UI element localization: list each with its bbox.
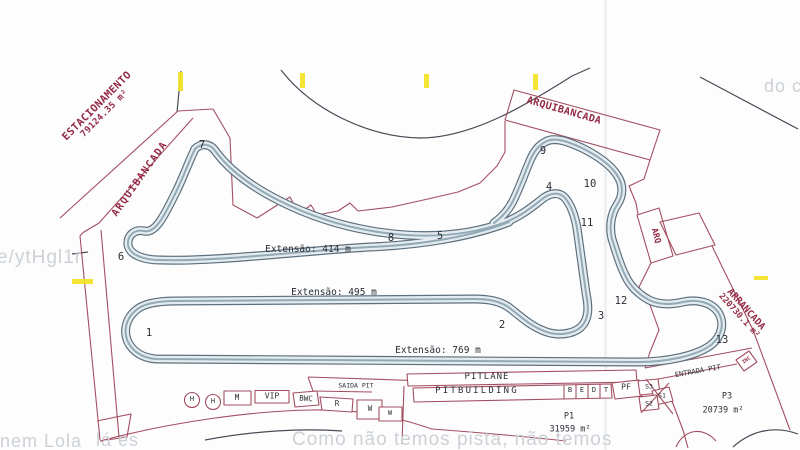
zone-label-p3: P3 bbox=[722, 392, 732, 401]
corner-number-5: 5 bbox=[437, 231, 443, 243]
corner-number-7: 7 bbox=[199, 140, 205, 152]
corner-number-11: 11 bbox=[581, 218, 594, 230]
watermark-text-left: e/ytHgl1r bbox=[0, 247, 82, 269]
corner-number-13: 13 bbox=[716, 335, 729, 347]
highlight-mark bbox=[533, 74, 538, 90]
pit-cell-d: D bbox=[592, 387, 596, 395]
zone-area-p3: 20739 m² bbox=[703, 406, 744, 415]
extension-label-414: Extensão: 414 m bbox=[265, 245, 351, 255]
facility-label-m: M bbox=[235, 394, 240, 402]
extension-label-495: Extensão: 495 m bbox=[291, 288, 377, 298]
highlighter-marks bbox=[72, 72, 768, 284]
extension-label-769: Extensão: 769 m bbox=[395, 346, 481, 356]
parking-top-edge bbox=[178, 109, 213, 111]
scanned-track-map: ESTACIONAMENTO 79124.35 m² ARQUIBANCADA … bbox=[0, 0, 800, 450]
pit-label-pitbuilding: PITBUILDING bbox=[435, 387, 519, 397]
grandstand-step-line bbox=[629, 160, 650, 214]
track-path-main-outer bbox=[126, 140, 722, 362]
corner-number-12: 12 bbox=[615, 296, 628, 308]
facility-label-w2: W bbox=[388, 410, 392, 418]
facility-label-bwc: BWC bbox=[299, 395, 313, 404]
watermark-text-bottom-left: nem Lola bbox=[0, 431, 82, 450]
corner-number-8: 8 bbox=[388, 233, 394, 245]
corner-number-1: 1 bbox=[146, 328, 152, 340]
facility-label-r: R bbox=[335, 400, 340, 408]
pit-cell-e: E bbox=[580, 387, 584, 395]
highlight-mark bbox=[72, 279, 93, 284]
zone-label-p1: P1 bbox=[564, 412, 574, 421]
pit-label-s3: S3 bbox=[645, 383, 653, 390]
highlight-mark bbox=[300, 73, 305, 88]
arrancada-inner-line bbox=[639, 263, 659, 368]
pit-label-pitlane: PITLANE bbox=[465, 373, 510, 383]
pit-cell-b: B bbox=[568, 387, 572, 395]
facility-label-h1: H bbox=[190, 396, 194, 404]
watermark-text-bottom: Como não temos pista, não temos bbox=[292, 429, 612, 450]
facility-label-w1: W bbox=[368, 405, 373, 413]
watermark-text-top-right: do c bbox=[764, 76, 800, 97]
facility-label-h2: H bbox=[211, 398, 215, 406]
highlight-mark bbox=[424, 74, 429, 88]
watermark-text-bottom-left-2: lá es bbox=[96, 430, 139, 450]
track-layers bbox=[126, 140, 722, 362]
highlight-mark bbox=[178, 72, 183, 91]
highlight-mark bbox=[754, 276, 768, 280]
pit-label-pf: PF bbox=[621, 384, 631, 393]
track-map-drawing bbox=[0, 0, 800, 450]
corner-number-4: 4 bbox=[546, 182, 552, 194]
p3-bottom-arc bbox=[676, 431, 716, 447]
corner-number-3: 3 bbox=[598, 311, 604, 323]
pit-label-saida: SAIDA PIT bbox=[338, 382, 373, 389]
pit-label-s2: S2 bbox=[645, 400, 653, 407]
boundary-curve-bottom-right bbox=[733, 430, 798, 447]
corner-number-9: 9 bbox=[540, 146, 546, 158]
facility-label-vip: VIP bbox=[265, 393, 279, 402]
corner-number-10: 10 bbox=[584, 179, 597, 191]
corner-number-6: 6 bbox=[118, 252, 124, 264]
pitlane-strip bbox=[407, 370, 637, 386]
arq-adjacent-quad bbox=[660, 213, 715, 255]
corner-number-2: 2 bbox=[499, 320, 505, 332]
track-path-main-fill bbox=[126, 140, 722, 362]
west-road-line-inner bbox=[101, 230, 119, 437]
track-path-main-center bbox=[126, 140, 722, 362]
west-road-line-outer bbox=[80, 118, 193, 440]
pit-label-s1: S1 bbox=[658, 392, 666, 399]
pit-cell-t: T bbox=[604, 387, 608, 395]
